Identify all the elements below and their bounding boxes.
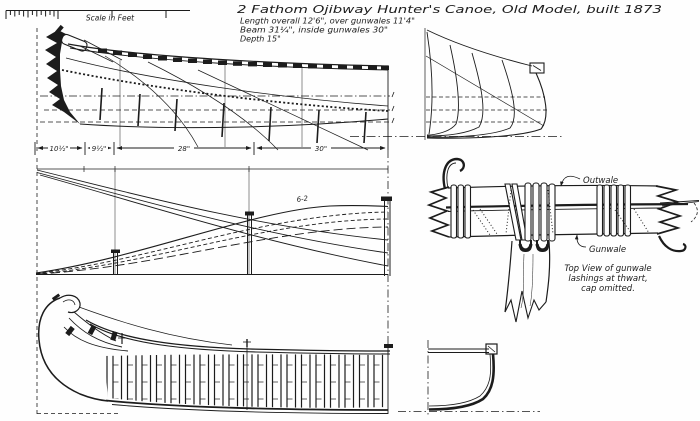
midship-section-view	[398, 340, 540, 416]
gunwale-caps	[98, 49, 389, 71]
bottom-rocker-line	[80, 119, 388, 128]
inboard-stem-head	[60, 295, 80, 312]
lashing-detail: Outwale Gunwale Top View of gunwale lash…	[429, 159, 699, 322]
inboard-view	[37, 293, 393, 413]
root-tail	[659, 236, 685, 251]
outwale-label: Outwale	[583, 176, 618, 186]
profile-view	[37, 25, 394, 152]
detail-caption-line2: lashings at thwart,	[568, 274, 647, 284]
left-break	[429, 187, 449, 237]
detail-caption-line3: cap omitted.	[581, 284, 635, 294]
thwart-board	[505, 241, 550, 322]
gunwale-label: Gunwale	[589, 245, 626, 255]
dimension-line: 10½" 9½" 28" 30"	[35, 142, 385, 155]
ribs	[104, 354, 388, 407]
body-plan-view	[350, 28, 562, 140]
rail-seam	[446, 204, 688, 208]
gunwale-half-breadth	[36, 206, 388, 273]
title-block: 2 Fathom Ojibway Hunter's Canoe, Old Mod…	[237, 3, 662, 44]
lashing-wraps-thwart	[505, 183, 555, 251]
sheer-projection	[427, 30, 532, 66]
scale-bar-label: Scale in Feet	[86, 14, 135, 23]
right-break	[656, 186, 680, 234]
plan-station-label: 6-2	[296, 194, 309, 204]
spec-beam: Beam 31¼", inside gunwales 30"	[240, 26, 388, 35]
spec-length: Length overall 12'6", over gunwales 11'4…	[240, 17, 415, 26]
dim-bow-offset: 10½"	[50, 145, 69, 153]
canoe-plan-drawing: Scale in Feet 2 Fathom Ojibway Hunter's …	[0, 0, 700, 421]
lashing-wraps-left	[451, 185, 471, 238]
lashing-wraps-right	[597, 185, 631, 236]
dim-second-offset: 9½"	[92, 145, 106, 153]
midship-hull-curve	[429, 354, 494, 410]
plan-thwarts	[111, 197, 392, 277]
detail-caption-line1: Top View of gunwale	[564, 264, 651, 274]
stem-head-plug	[60, 33, 88, 52]
diagonal-reference	[426, 56, 544, 126]
dim-28: 28"	[178, 145, 190, 153]
drawing-title: 2 Fathom Ojibway Hunter's Canoe, Old Mod…	[237, 3, 662, 16]
spec-depth: Depth 15"	[240, 35, 281, 44]
outwale-leader-arrow	[561, 176, 580, 186]
canoe-plan-sheet: Scale in Feet 2 Fathom Ojibway Hunter's …	[0, 0, 700, 421]
dim-30: 30"	[315, 145, 327, 153]
scale-bar: Scale in Feet	[6, 11, 190, 23]
gunwale-leader-arrow	[577, 235, 586, 247]
